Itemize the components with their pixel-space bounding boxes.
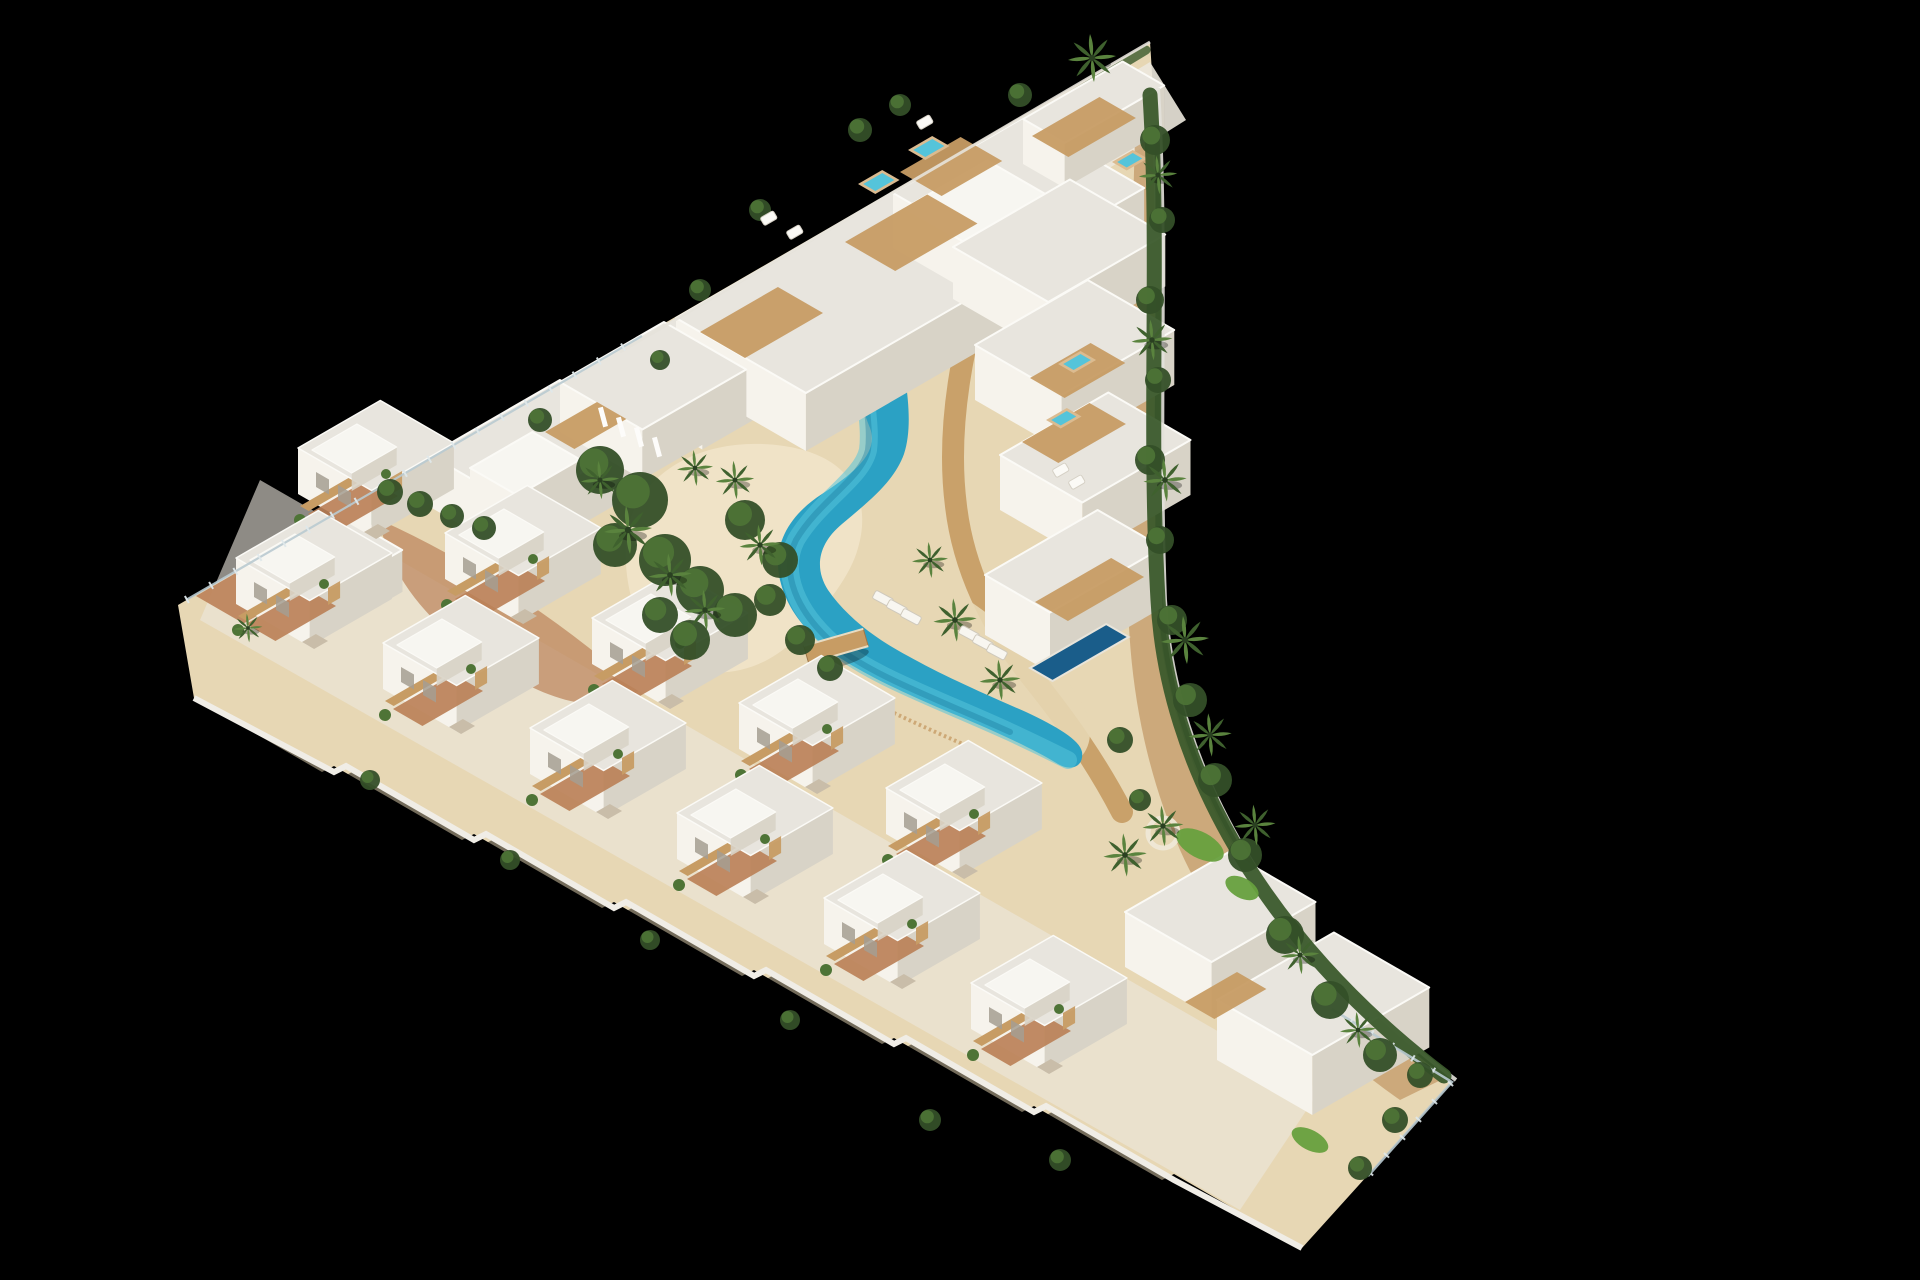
roof-sofa bbox=[786, 225, 803, 240]
shrub-light bbox=[1269, 918, 1292, 941]
shrub-cluster bbox=[1407, 1062, 1433, 1088]
shrub-cluster bbox=[848, 118, 872, 142]
shrub-light bbox=[1176, 685, 1196, 705]
shrub-light bbox=[1409, 1063, 1425, 1079]
shrub-cluster bbox=[407, 491, 433, 517]
shrub-light bbox=[1366, 1040, 1386, 1060]
shrub-light bbox=[756, 586, 775, 605]
shrub-cluster bbox=[360, 770, 380, 790]
shrub-light bbox=[751, 200, 764, 213]
shrub-light bbox=[1231, 840, 1251, 860]
aerial-render-illustration bbox=[0, 0, 1920, 1280]
shrub-light bbox=[1350, 1157, 1364, 1171]
shrub-cluster bbox=[1135, 445, 1165, 475]
shrub-cluster bbox=[785, 625, 815, 655]
shrub-light bbox=[819, 656, 835, 672]
render-canvas: Isometric aerial 3D rendering of a white… bbox=[0, 0, 1920, 1280]
shrub-light bbox=[474, 517, 488, 531]
shrub-light bbox=[502, 851, 514, 863]
shrub-light bbox=[1384, 1108, 1400, 1124]
shrub-cluster bbox=[817, 655, 843, 681]
shrub-cluster bbox=[1382, 1107, 1408, 1133]
shrub-cluster bbox=[1311, 981, 1349, 1019]
shrub-light bbox=[673, 622, 697, 646]
shrub-cluster bbox=[754, 584, 786, 616]
shrub-cluster bbox=[500, 850, 520, 870]
shrub-light bbox=[1151, 208, 1167, 224]
shrub-cluster bbox=[612, 472, 668, 528]
shrub-cluster bbox=[1008, 83, 1032, 107]
shrub-cluster bbox=[919, 1109, 941, 1131]
shrub-cluster bbox=[1146, 526, 1174, 554]
shrub-light bbox=[921, 1110, 934, 1123]
shrub-cluster bbox=[1049, 1149, 1071, 1171]
shrub-light bbox=[1142, 127, 1160, 145]
shrub-light bbox=[1131, 790, 1144, 803]
shrub-light bbox=[379, 480, 395, 496]
shrub-light bbox=[850, 119, 864, 133]
shrub-light bbox=[409, 492, 425, 508]
shrub-light bbox=[645, 599, 667, 621]
shrub-cluster bbox=[1136, 286, 1164, 314]
shrub-cluster bbox=[642, 597, 678, 633]
shrub-cluster bbox=[689, 279, 711, 301]
shrub-light bbox=[891, 95, 904, 108]
shrub-light bbox=[1109, 728, 1125, 744]
shrub-light bbox=[728, 502, 752, 526]
shrub-cluster bbox=[1173, 683, 1207, 717]
shrub-cluster bbox=[1145, 367, 1171, 393]
shrub-cluster bbox=[1149, 207, 1175, 233]
shrub-light bbox=[1138, 287, 1155, 304]
shrub-light bbox=[362, 771, 374, 783]
shrub-cluster bbox=[780, 1010, 800, 1030]
shrub-light bbox=[442, 505, 456, 519]
shrub-light bbox=[1147, 368, 1163, 384]
shrub-light bbox=[1314, 983, 1337, 1006]
shrub-cluster bbox=[1107, 727, 1133, 753]
shrub-cluster bbox=[640, 930, 660, 950]
shrub-cluster bbox=[1363, 1038, 1397, 1072]
shrub-cluster bbox=[472, 516, 496, 540]
shrub-light bbox=[642, 931, 654, 943]
shrub-light bbox=[782, 1011, 794, 1023]
shrub-light bbox=[1051, 1150, 1064, 1163]
roof-sofa bbox=[916, 115, 933, 130]
shrub-cluster bbox=[670, 620, 710, 660]
shrub-light bbox=[530, 409, 544, 423]
shrub-cluster bbox=[1198, 763, 1232, 797]
shrub-light bbox=[1159, 607, 1177, 625]
shrub-cluster bbox=[440, 504, 464, 528]
shrub-light bbox=[616, 475, 650, 509]
shrub-cluster bbox=[1348, 1156, 1372, 1180]
shrub-light bbox=[1010, 84, 1024, 98]
shrub-cluster bbox=[1129, 789, 1151, 811]
shrub-cluster bbox=[650, 350, 670, 370]
shrub-cluster bbox=[1140, 125, 1170, 155]
shrub-light bbox=[652, 351, 664, 363]
shrub-light bbox=[1148, 527, 1165, 544]
shrub-light bbox=[691, 280, 704, 293]
shrub-cluster bbox=[889, 94, 911, 116]
shrub-cluster bbox=[528, 408, 552, 432]
shrub-cluster bbox=[377, 479, 403, 505]
shrub-light bbox=[1201, 765, 1221, 785]
shrub-light bbox=[787, 627, 805, 645]
shrub-light bbox=[1137, 447, 1155, 465]
